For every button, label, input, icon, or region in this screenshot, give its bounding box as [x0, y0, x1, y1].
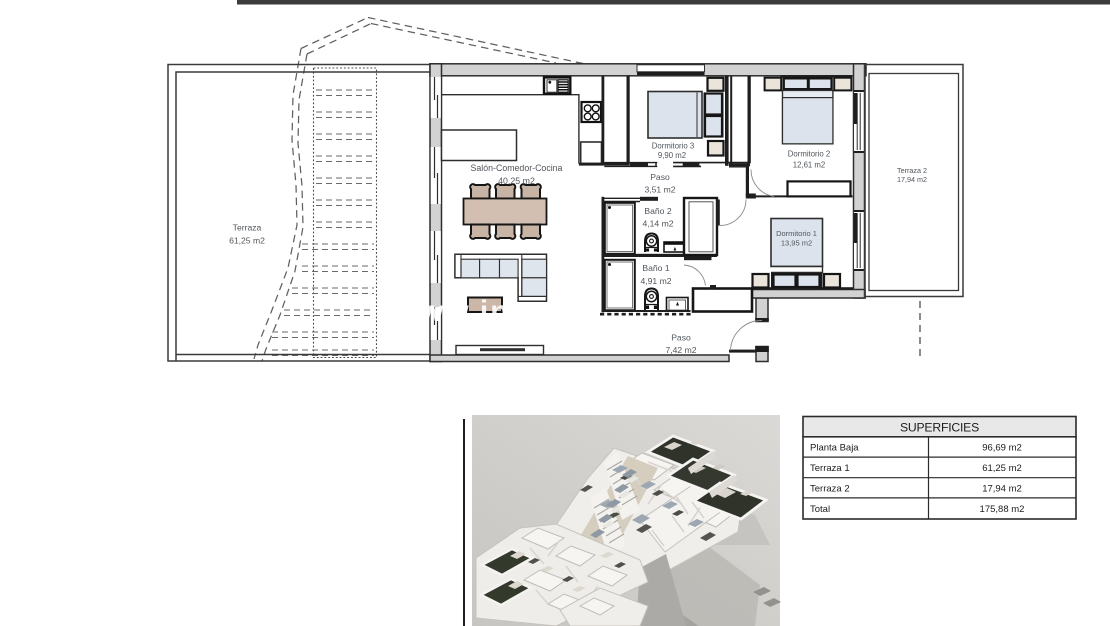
svg-text:SUPERFICIES: SUPERFICIES [900, 421, 979, 435]
svg-text:9,90 m2: 9,90 m2 [658, 151, 686, 160]
svg-text:Dormitorio 2: Dormitorio 2 [788, 150, 830, 159]
svg-text:7,42 m2: 7,42 m2 [665, 345, 696, 355]
svg-text:12,61 m2: 12,61 m2 [793, 161, 826, 170]
svg-text:Planta Baja: Planta Baja [810, 443, 859, 454]
svg-text:96,69 m2: 96,69 m2 [982, 443, 1022, 454]
svg-text:17,94 m2: 17,94 m2 [897, 175, 927, 184]
svg-text:17,94 m2: 17,94 m2 [982, 484, 1022, 495]
svg-text:40,25 m2: 40,25 m2 [498, 176, 535, 186]
svg-text:Paso: Paso [650, 172, 670, 182]
svg-text:175,88 m2: 175,88 m2 [980, 504, 1025, 515]
svg-text:3,51 m2: 3,51 m2 [644, 185, 675, 195]
svg-text:Dormitorio 3: Dormitorio 3 [652, 142, 694, 151]
svg-text:61,25 m2: 61,25 m2 [982, 463, 1022, 474]
svg-text:61,25 m2: 61,25 m2 [229, 236, 265, 246]
svg-text:13,95 m2: 13,95 m2 [781, 238, 812, 247]
svg-text:Baño 1: Baño 1 [642, 263, 669, 273]
svg-text:Terraza 2: Terraza 2 [810, 484, 850, 495]
svg-text:Baño 2: Baño 2 [644, 206, 671, 216]
svg-text:Terraza: Terraza [233, 223, 262, 233]
svg-text:Paso: Paso [671, 333, 691, 343]
svg-text:ww.in: ww.in [419, 295, 511, 328]
svg-text:Total: Total [810, 504, 830, 515]
svg-text:4,14 m2: 4,14 m2 [642, 219, 673, 229]
svg-text:Terraza 2: Terraza 2 [897, 166, 927, 175]
svg-text:Dormitorio 1: Dormitorio 1 [776, 229, 817, 238]
svg-text:Terraza 1: Terraza 1 [810, 463, 850, 474]
svg-text:4,91 m2: 4,91 m2 [640, 276, 671, 286]
svg-text:Salón-Comedor-Cocina: Salón-Comedor-Cocina [471, 163, 563, 173]
